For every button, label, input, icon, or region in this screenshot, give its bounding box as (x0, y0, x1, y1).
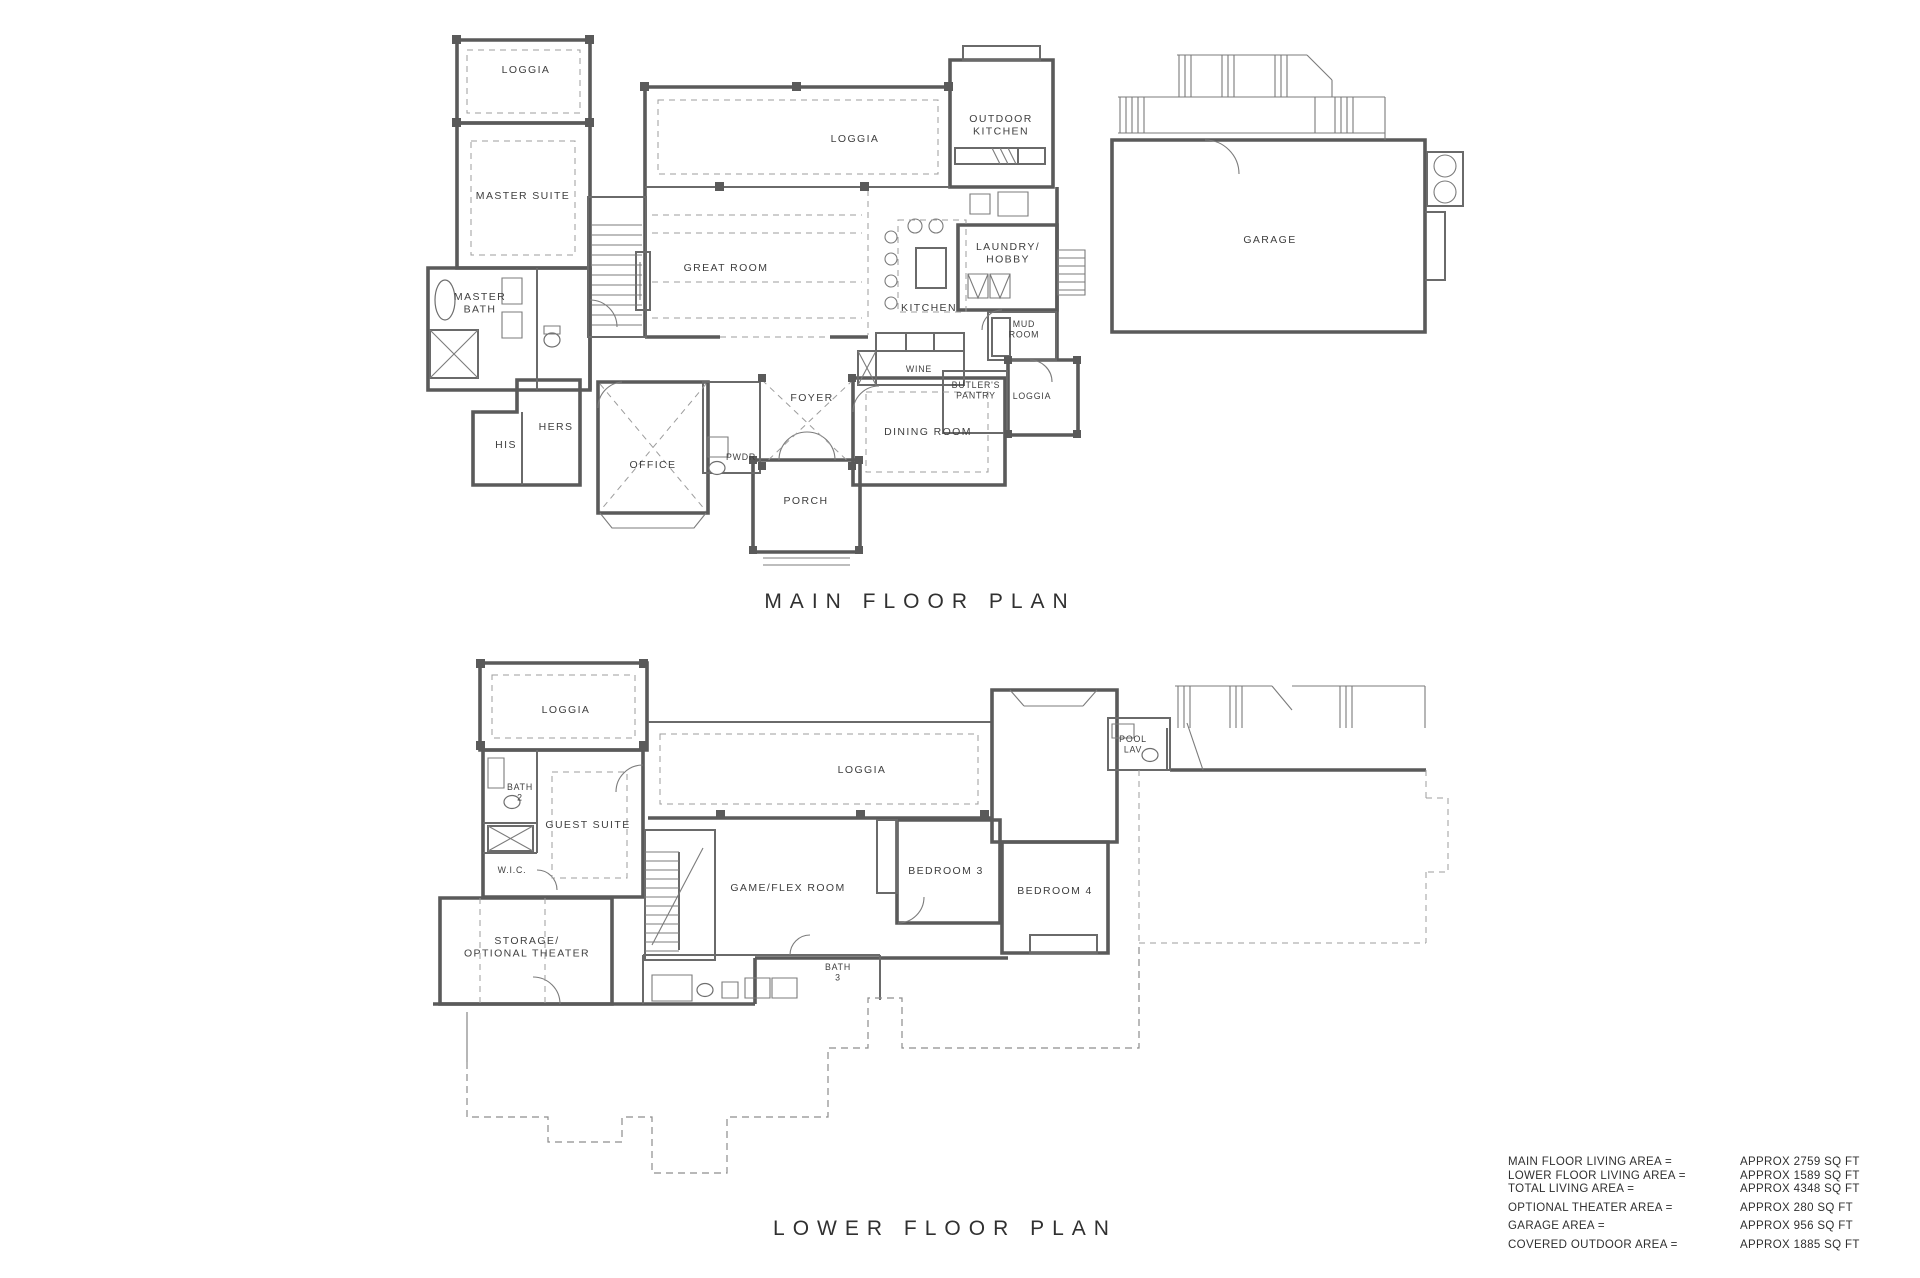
main-floor-plan-title: MAIN FLOOR PLAN (764, 590, 1075, 613)
room-label-outdoor-kitchen: OUTDOORKITCHEN (969, 113, 1032, 137)
room-label-garage: GARAGE (1243, 234, 1296, 246)
room-label-pwdr: PWDR (726, 452, 756, 462)
room-label-bath-3: BATH3 (825, 962, 851, 982)
area-summary-row: COVERED OUTDOOR AREA = APPROX 1885 SQ FT (1508, 1239, 1912, 1253)
room-label-great-room: GREAT ROOM (684, 262, 769, 274)
room-label-bedroom-4: BEDROOM 4 (1017, 885, 1093, 897)
room-label-master-bath: MASTERBATH (454, 291, 506, 315)
lower-floor-posts (476, 659, 989, 819)
floor-plan-drawing: LOGGIA MASTER SUITE MASTERBATH HIS HERS … (0, 0, 1920, 1278)
main-floor-walls (428, 40, 1425, 552)
lower-floor-plan-title: LOWER FLOOR PLAN (773, 1217, 1117, 1240)
room-label-wine: WINE (906, 364, 932, 374)
area-summary-row: GARAGE AREA = APPROX 956 SQ FT (1508, 1220, 1912, 1234)
room-label-guest-suite: GUEST SUITE (545, 819, 630, 831)
area-value: APPROX 1885 SQ FT (1740, 1239, 1912, 1253)
room-label-mud-room: MUDROOM (1009, 319, 1040, 339)
toilet-icon (544, 333, 560, 347)
room-label-hers: HERS (539, 421, 574, 433)
room-label-loggia-rear: LOGGIA (831, 133, 880, 145)
area-summary: MAIN FLOOR LIVING AREA = APPROX 2759 SQ … (1508, 1156, 1912, 1252)
room-label-loggia-side: LOGGIA (1013, 391, 1052, 401)
area-value: APPROX 2759 SQ FT (1740, 1156, 1912, 1170)
area-summary-row: TOTAL LIVING AREA = APPROX 4348 SQ FT (1508, 1183, 1912, 1197)
area-label: LOWER FLOOR LIVING AREA = (1508, 1170, 1740, 1184)
room-label-bedroom-3: BEDROOM 3 (908, 865, 984, 877)
room-label-porch: PORCH (784, 495, 829, 507)
main-floor-plan: LOGGIA MASTER SUITE MASTERBATH HIS HERS … (428, 35, 1463, 613)
area-value: APPROX 280 SQ FT (1740, 1202, 1912, 1216)
room-label-loggia-lower-left: LOGGIA (542, 704, 591, 716)
area-label: OPTIONAL THEATER AREA = (1508, 1202, 1740, 1216)
area-label: COVERED OUTDOOR AREA = (1508, 1239, 1740, 1253)
tub-icon (435, 280, 455, 320)
room-label-foyer: FOYER (790, 392, 833, 404)
room-label-his: HIS (495, 439, 517, 451)
lower-floor-doors (533, 765, 924, 1004)
area-label: TOTAL LIVING AREA = (1508, 1183, 1740, 1197)
room-label-laundry-hobby: LAUNDRY/HOBBY (976, 241, 1040, 265)
room-label-butlers-pantry: BUTLER'SPANTRY (952, 380, 1001, 400)
area-value: APPROX 1589 SQ FT (1740, 1170, 1912, 1184)
area-summary-row: OPTIONAL THEATER AREA = APPROX 280 SQ FT (1508, 1202, 1912, 1216)
room-label-master-suite: MASTER SUITE (476, 190, 570, 202)
room-label-kitchen: KITCHEN (901, 302, 957, 314)
room-label-game-flex-room: GAME/FLEX ROOM (730, 882, 845, 894)
room-label-loggia-center: LOGGIA (838, 764, 887, 776)
area-label: GARAGE AREA = (1508, 1220, 1740, 1234)
area-summary-row: MAIN FLOOR LIVING AREA = APPROX 2759 SQ … (1508, 1156, 1912, 1170)
main-floor-partitions (522, 46, 1463, 485)
area-summary-row: LOWER FLOOR LIVING AREA = APPROX 1589 SQ… (1508, 1170, 1912, 1184)
lower-floor-plan: LOGGIA BATH2 GUEST SUITE W.I.C. STORAGE/… (433, 659, 1448, 1240)
floor-plan-sheet: LOGGIA MASTER SUITE MASTERBATH HIS HERS … (0, 0, 1920, 1278)
room-label-storage-theater: STORAGE/OPTIONAL THEATER (464, 935, 590, 959)
area-label: MAIN FLOOR LIVING AREA = (1508, 1156, 1740, 1170)
toilet-icon (1142, 749, 1158, 762)
area-value: APPROX 956 SQ FT (1740, 1220, 1912, 1234)
room-label-loggia-top-left: LOGGIA (502, 64, 551, 76)
toilet-icon (697, 984, 713, 997)
room-label-dining-room: DINING ROOM (884, 426, 972, 438)
room-label-office: OFFICE (630, 459, 677, 471)
toilet-icon (709, 462, 725, 475)
room-label-wic: W.I.C. (498, 865, 527, 875)
area-value: APPROX 4348 SQ FT (1740, 1183, 1912, 1197)
